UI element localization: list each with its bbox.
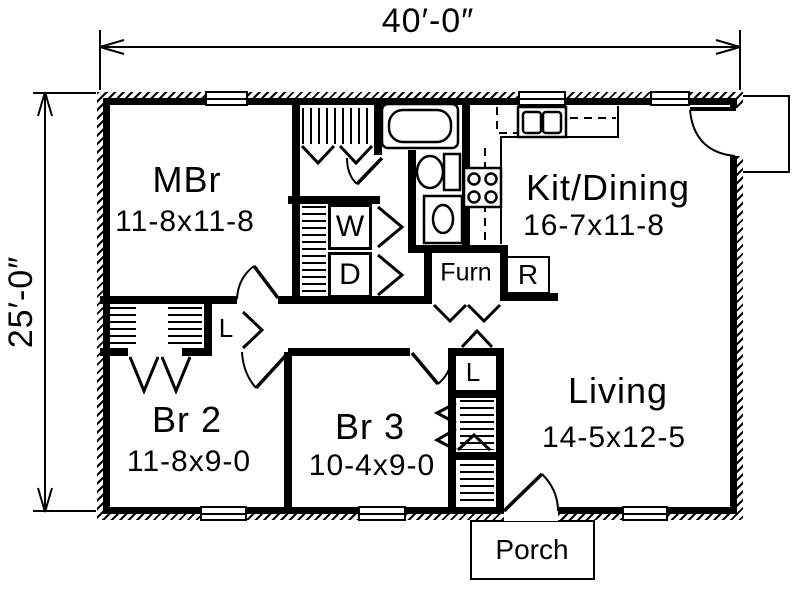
refrigerator-box: R <box>506 256 550 294</box>
height-dimension-label: 25′-0″ <box>4 256 38 348</box>
coat-closet-hatch <box>460 464 494 506</box>
wall-bath-kitchen <box>462 105 470 253</box>
linen-br3-label: L <box>466 359 480 385</box>
kitchen-window-1 <box>518 91 566 106</box>
wall-closetcol-west <box>448 348 456 512</box>
br3-closet-hatch <box>460 400 494 450</box>
br2-closet-hatch-left <box>104 307 136 347</box>
dryer-label: D <box>339 258 361 292</box>
wall-under-fridge <box>500 293 558 301</box>
room-size-br2: 11-8x9-0 <box>127 447 251 477</box>
kitchen-window-2 <box>650 91 690 106</box>
floor-plan: W D R <box>0 0 800 600</box>
rear-stoop <box>741 95 790 173</box>
wall-furn-left <box>424 245 432 300</box>
room-size-br3: 10-4x9-0 <box>309 451 435 481</box>
wall-closetcol-mid2 <box>448 452 504 460</box>
room-size-mbr: 11-8x11-8 <box>115 207 255 237</box>
room-label-living: Living <box>568 373 668 409</box>
mbr-window <box>205 91 248 106</box>
linen-hall-label: L <box>219 315 233 341</box>
br3-window <box>358 506 406 521</box>
wall-bath-west <box>408 150 416 253</box>
back-door-opening <box>728 108 745 156</box>
living-window <box>622 506 668 521</box>
br2-window <box>200 506 247 521</box>
wall-wd-top <box>288 196 380 204</box>
room-label-br2: Br 2 <box>152 402 222 438</box>
wall-br3-top <box>288 348 410 356</box>
room-label-mbr: MBr <box>153 162 222 198</box>
wall-br2-br3 <box>284 352 292 512</box>
mbr-closet-hatch <box>302 108 374 144</box>
wall-closetcol-mid1 <box>448 390 504 398</box>
hall-closet-shelves <box>302 206 326 296</box>
wall-closetcol-east <box>496 348 504 512</box>
washer-label: W <box>336 210 364 244</box>
room-label-kitdining: Kit/Dining <box>526 170 690 206</box>
room-size-living: 14-5x12-5 <box>542 423 686 453</box>
room-size-kitdining: 16-7x11-8 <box>523 211 665 241</box>
porch-label: Porch <box>495 536 568 564</box>
width-dimension-label: 40′-0″ <box>382 4 474 38</box>
wall-br2-closet-stub-left <box>100 348 128 356</box>
front-door-opening <box>504 506 558 521</box>
washer-box: W <box>328 204 372 250</box>
wall-closet-bath <box>374 105 382 155</box>
wall-furn-top <box>424 245 508 253</box>
furnace-label: Furn <box>440 261 491 286</box>
wall-hall-top-left <box>100 296 237 304</box>
wall-br2closet-east <box>204 296 212 356</box>
dryer-box: D <box>328 252 372 298</box>
room-label-br3: Br 3 <box>335 409 405 445</box>
refrigerator-label: R <box>518 259 538 291</box>
height-dimension-line <box>33 92 96 512</box>
br2-closet-hatch-right <box>168 307 202 347</box>
